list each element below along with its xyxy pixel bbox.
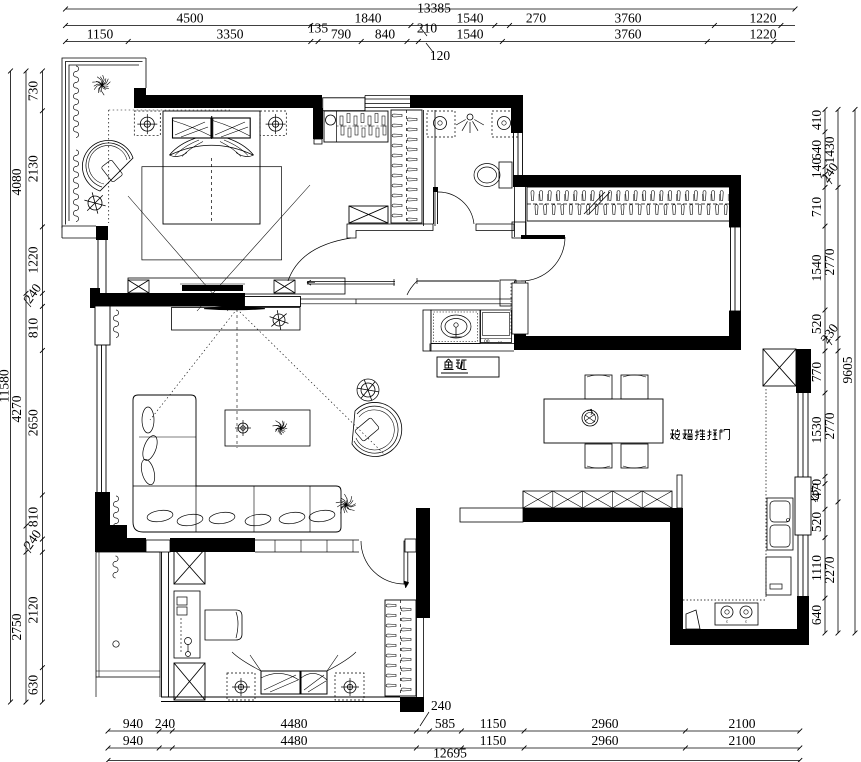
svg-text:940: 940 — [123, 716, 144, 731]
svg-text:810: 810 — [25, 318, 40, 339]
svg-text:135: 135 — [308, 21, 329, 36]
svg-text:2770: 2770 — [822, 248, 837, 275]
svg-text:730: 730 — [25, 81, 40, 102]
svg-text:710: 710 — [809, 197, 824, 218]
svg-text:2960: 2960 — [592, 716, 619, 731]
svg-text:2750: 2750 — [9, 613, 24, 640]
svg-text:4080: 4080 — [9, 168, 24, 195]
svg-text:640: 640 — [809, 605, 824, 626]
svg-text:585: 585 — [435, 716, 456, 731]
svg-text:9605: 9605 — [840, 356, 855, 383]
svg-text:4270: 4270 — [9, 395, 24, 422]
svg-text:c: c — [745, 619, 747, 624]
svg-text:810: 810 — [25, 507, 40, 528]
svg-text:1430: 1430 — [822, 136, 837, 163]
svg-text:1150: 1150 — [87, 27, 114, 42]
svg-text:2650: 2650 — [25, 409, 40, 436]
svg-text:940: 940 — [123, 733, 144, 748]
svg-text:2100: 2100 — [729, 716, 756, 731]
svg-text:4480: 4480 — [281, 716, 308, 731]
svg-text:2100: 2100 — [729, 733, 756, 748]
svg-text:4500: 4500 — [177, 11, 204, 26]
svg-text:1220: 1220 — [750, 11, 777, 26]
svg-text:13385: 13385 — [417, 1, 451, 16]
svg-text:2130: 2130 — [25, 155, 40, 182]
svg-text:2770: 2770 — [822, 412, 837, 439]
svg-text:1540: 1540 — [457, 11, 484, 26]
svg-text:1540: 1540 — [457, 27, 484, 42]
svg-text:2960: 2960 — [592, 733, 619, 748]
svg-text:840: 840 — [375, 27, 396, 42]
svg-text:12695: 12695 — [433, 746, 467, 761]
svg-text:240: 240 — [155, 716, 176, 731]
svg-text:270: 270 — [526, 11, 547, 26]
svg-text:770: 770 — [809, 362, 824, 383]
svg-text:410: 410 — [809, 110, 824, 131]
svg-text:c: c — [726, 619, 728, 624]
svg-text:3760: 3760 — [615, 11, 642, 26]
svg-text:210: 210 — [417, 21, 438, 36]
svg-text:1150: 1150 — [480, 733, 507, 748]
svg-text:3760: 3760 — [615, 27, 642, 42]
svg-text:3350: 3350 — [217, 27, 244, 42]
svg-text:4480: 4480 — [281, 733, 308, 748]
svg-text:1220: 1220 — [25, 246, 40, 273]
svg-text:1150: 1150 — [480, 716, 507, 731]
svg-text:120: 120 — [430, 48, 451, 63]
svg-text:240: 240 — [431, 698, 452, 713]
svg-text:1220: 1220 — [750, 27, 777, 42]
svg-text:2120: 2120 — [25, 596, 40, 623]
svg-text:1840: 1840 — [355, 11, 382, 26]
svg-text:790: 790 — [331, 27, 352, 42]
svg-text:630: 630 — [25, 675, 40, 696]
svg-text:2270: 2270 — [822, 556, 837, 583]
